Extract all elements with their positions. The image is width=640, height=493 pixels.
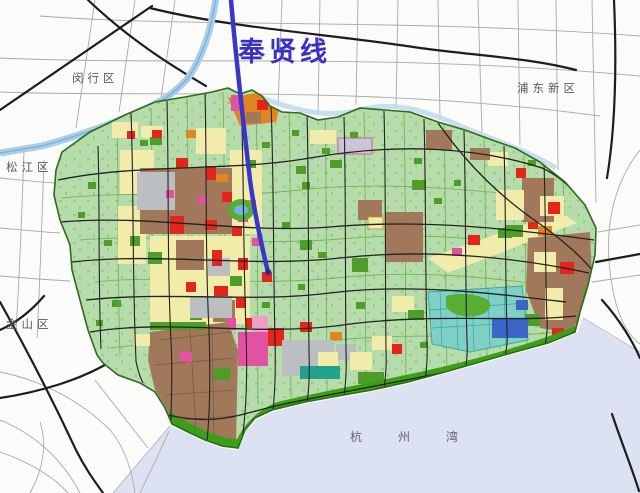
- metro-line-label: 奉贤线: [237, 37, 331, 68]
- region-label-jinshan: 金山区: [6, 317, 53, 331]
- map-canvas: 奉贤线 闵行区 浦东新区 松江区 金山区 杭州湾: [0, 0, 640, 493]
- region-label-minhang: 闵行区: [72, 71, 119, 85]
- region-label-pudong: 浦东新区: [517, 81, 579, 95]
- bay-label-hangzhou: 杭州湾: [350, 429, 494, 444]
- region-label-songjiang: 松江区: [6, 160, 53, 174]
- metro-line-terminus: [265, 269, 271, 275]
- planning-map: 奉贤线 闵行区 浦东新区 松江区 金山区 杭州湾: [0, 0, 640, 493]
